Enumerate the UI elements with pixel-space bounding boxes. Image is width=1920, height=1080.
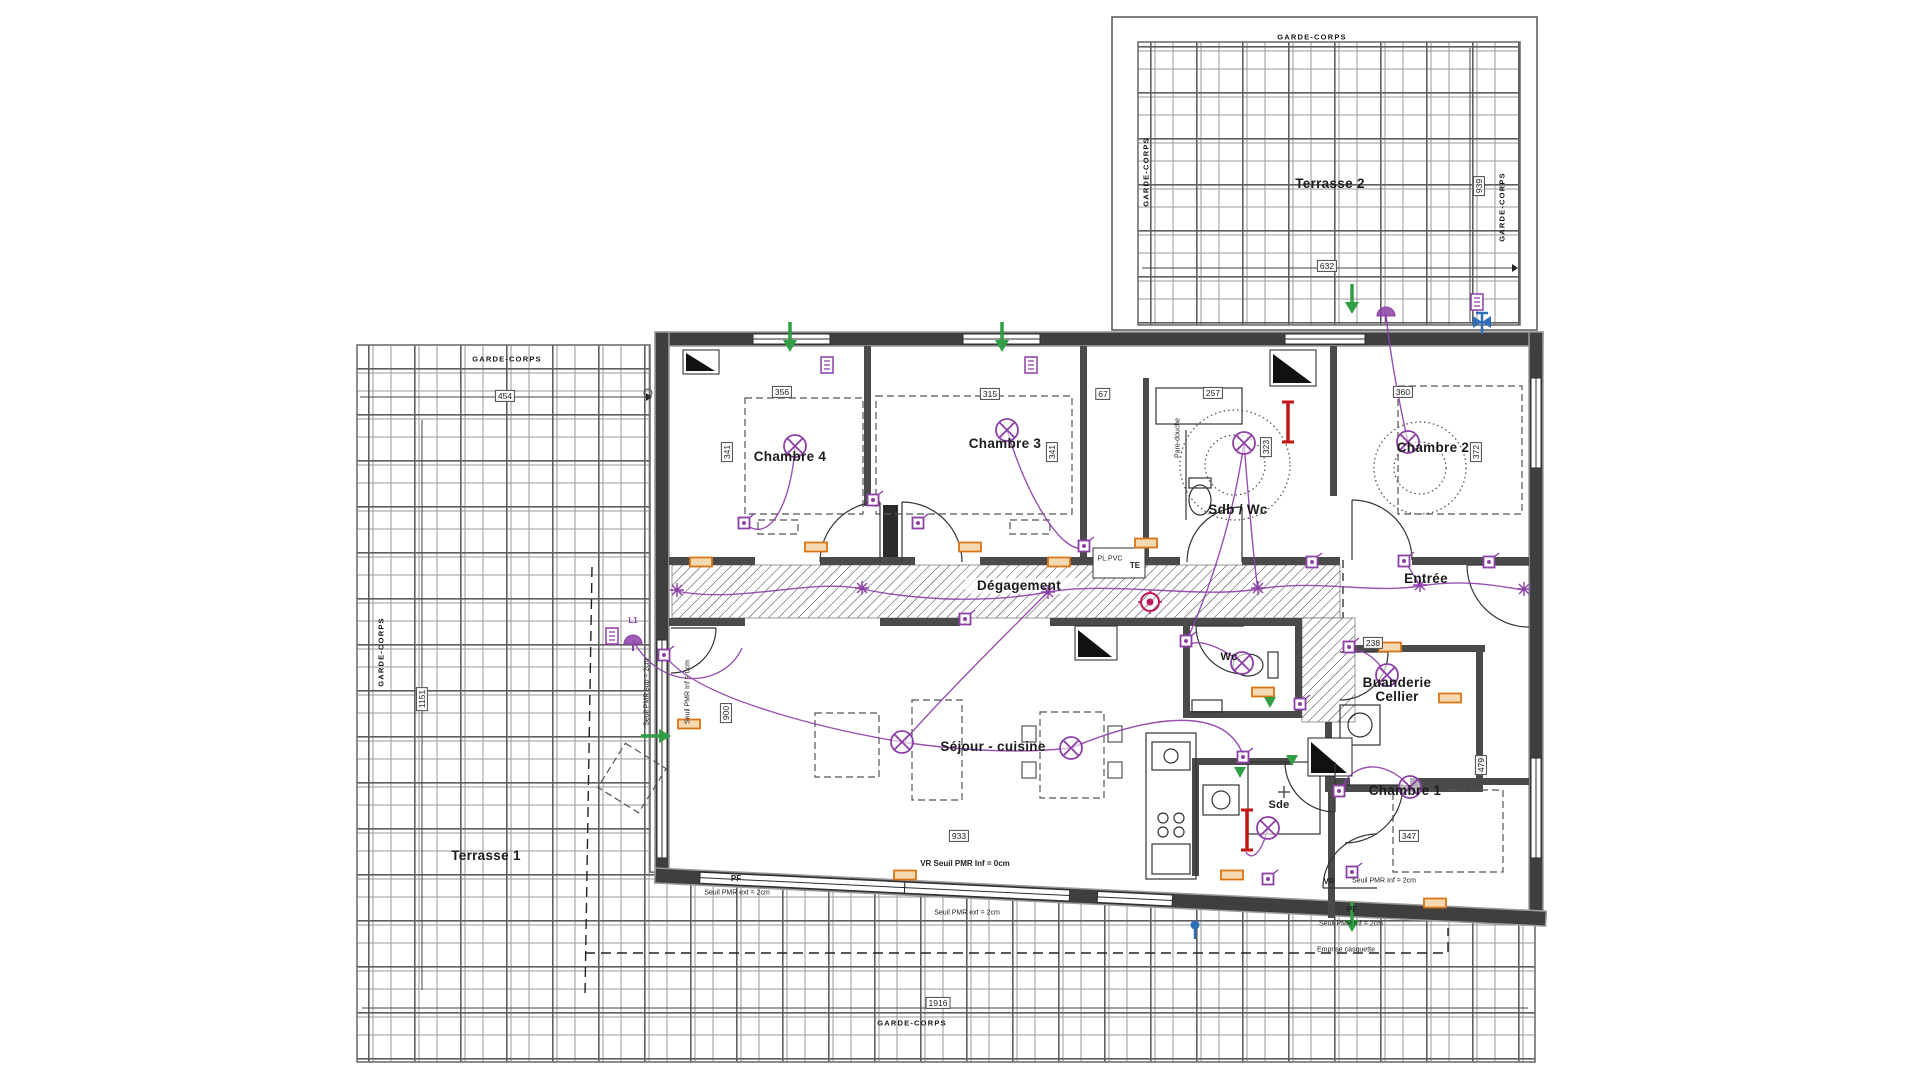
socket-icon xyxy=(1048,558,1070,567)
ceiling-light-icon xyxy=(1231,652,1253,674)
terrace-2 xyxy=(1112,17,1537,330)
furniture xyxy=(598,386,1522,879)
radiator-icon xyxy=(1241,810,1253,850)
switch-icon xyxy=(739,514,755,529)
vent-triangle-icon xyxy=(1234,767,1246,778)
socket-icon xyxy=(894,871,916,880)
device-tag-icon xyxy=(606,628,618,644)
wiring-junction-icon xyxy=(1041,585,1055,599)
socket-icon xyxy=(690,558,712,567)
socket-icon xyxy=(1424,899,1446,908)
socket-icon xyxy=(1439,694,1461,703)
socket-icon xyxy=(1379,643,1401,652)
socket-icon xyxy=(678,720,700,729)
wiring-junction-icon xyxy=(1413,578,1427,592)
ceiling-light-icon xyxy=(1397,431,1419,453)
ceiling-light-icon xyxy=(1233,432,1255,454)
device-tag-icon xyxy=(1471,294,1483,310)
socket-icon xyxy=(959,543,981,552)
ceiling-light-icon xyxy=(1257,817,1279,839)
device-tag-icon xyxy=(1025,357,1037,373)
socket-icon xyxy=(1221,871,1243,880)
socket-icon xyxy=(805,543,827,552)
switch-icon xyxy=(913,514,929,529)
radiator-icon xyxy=(1282,402,1294,442)
ceiling-light-icon xyxy=(996,419,1018,441)
floor-plan-canvas: Terrasse 2Terrasse 1Chambre 4Chambre 3Ch… xyxy=(0,0,1920,1080)
socket-icon xyxy=(1252,688,1274,697)
wiring-junction-icon xyxy=(1517,582,1531,596)
switch-icon xyxy=(1263,870,1279,885)
floor-plan-drawing xyxy=(0,0,1920,1080)
ceiling-light-icon xyxy=(784,435,806,457)
ceiling-light-icon xyxy=(1376,664,1398,686)
wiring-junction-icon xyxy=(1251,581,1265,595)
ceiling-light-icon xyxy=(1060,737,1082,759)
terrace-1 xyxy=(357,345,1535,1062)
switch-icon xyxy=(1347,863,1363,878)
wiring-junction-icon xyxy=(855,581,869,595)
vent-triangle-icon xyxy=(1264,697,1276,708)
device-tag-icon xyxy=(821,357,833,373)
ceiling-light-icon xyxy=(1399,776,1421,798)
wiring-junction-icon xyxy=(670,583,684,597)
socket-icon xyxy=(1135,539,1157,548)
ceiling-light-icon xyxy=(891,731,913,753)
